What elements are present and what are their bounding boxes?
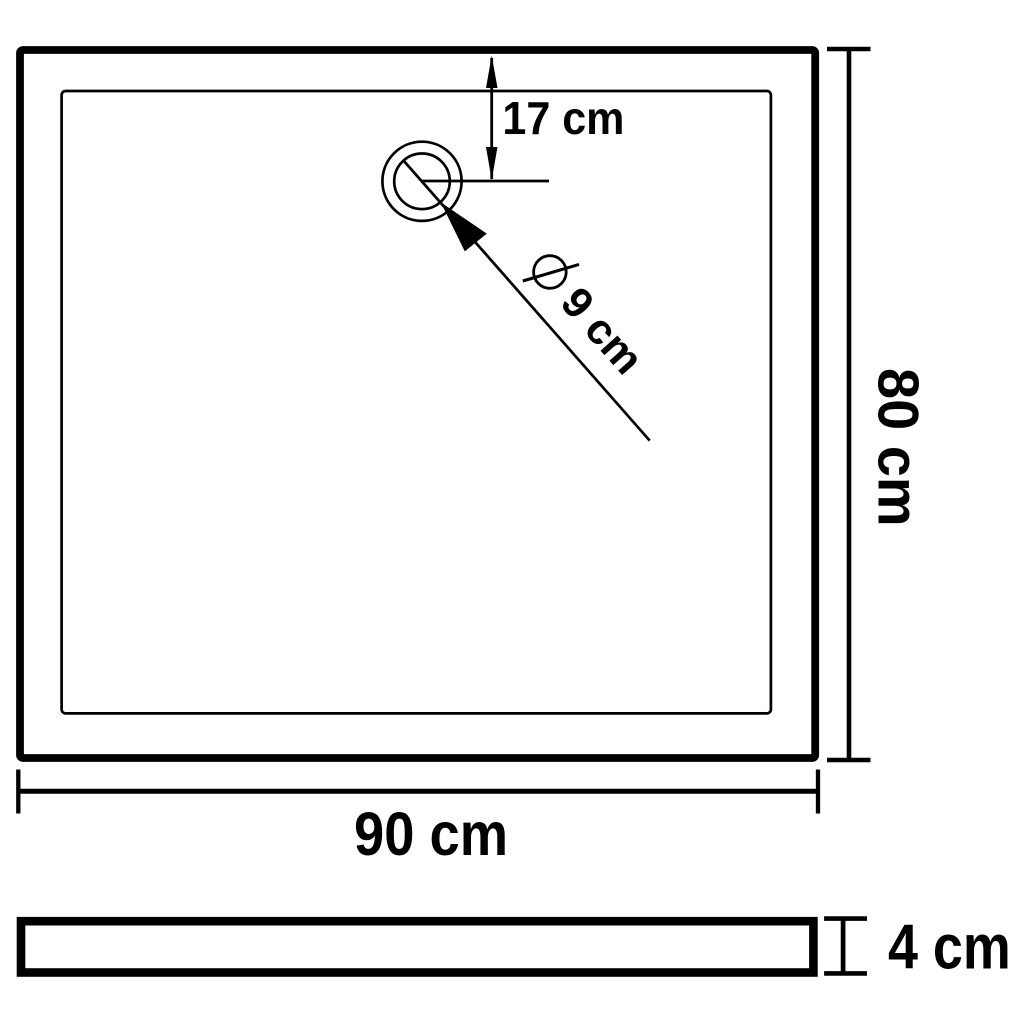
svg-text:17 cm: 17 cm: [502, 92, 624, 144]
svg-text:90 cm: 90 cm: [354, 800, 508, 869]
svg-text:4 cm: 4 cm: [888, 913, 1011, 983]
svg-text:80 cm: 80 cm: [866, 368, 930, 527]
